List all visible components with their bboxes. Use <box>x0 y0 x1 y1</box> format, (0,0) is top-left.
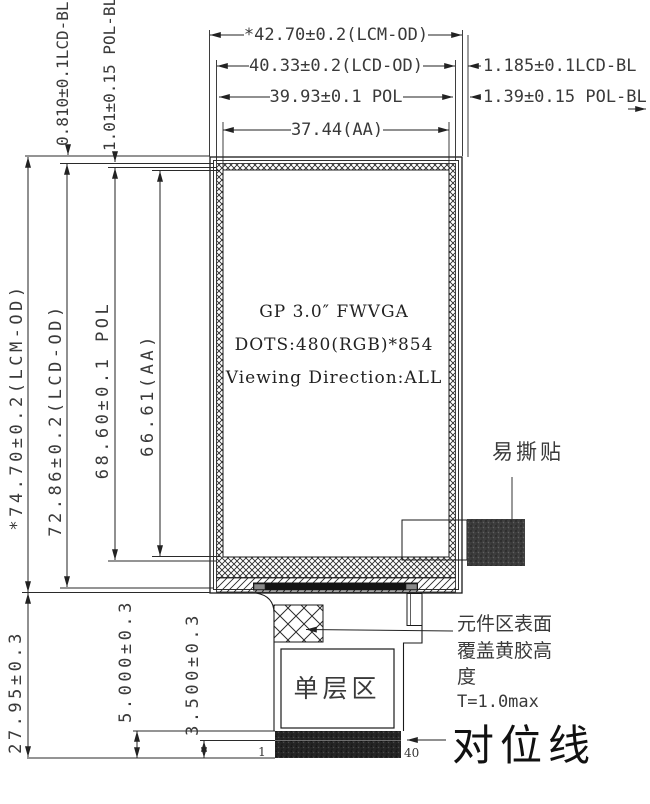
dim-lcd-bl-top: 0.810±0.1LCD-BL <box>53 2 72 147</box>
dim-pol-height: 68.60±0.1 POL <box>93 301 113 480</box>
single-layer-label: 单层区 <box>293 674 380 703</box>
display-resolution: DOTS:480(RGB)*854 <box>235 335 434 355</box>
fpc-left-edge <box>256 593 274 731</box>
dim-lcm-height: *74.70±0.2(LCM-OD) <box>7 283 27 530</box>
driver-ic-pad-right <box>406 584 417 590</box>
fpc-connector-tab <box>407 594 422 626</box>
sticker-dark-part <box>467 519 525 566</box>
component-note-line1: 元件区表面 <box>457 613 552 635</box>
dim-lcd-bl-right: 1.185±0.1LCD-BL <box>483 56 637 76</box>
dim-pol-bl-right: 1.39±0.15 POL-BL <box>483 87 647 107</box>
dim-3-5mm: 3.500±0.3 <box>183 612 203 736</box>
active-area <box>223 170 449 557</box>
display-viewing-direction: Viewing Direction:ALL <box>225 368 443 388</box>
lcd-module-drawing: *42.70±0.2(LCM-OD) 40.33±0.2(LCD-OD) 39.… <box>0 0 650 804</box>
dim-aa-height: 66.61(AA) <box>138 333 158 457</box>
top-dimension-texts: *42.70±0.2(LCM-OD) 40.33±0.2(LCD-OD) 39.… <box>244 25 647 140</box>
dim-lcm-width: *42.70±0.2(LCM-OD) <box>244 25 428 45</box>
dim-pol-bl-top: 1.01±0.15 POL-BL <box>100 0 119 151</box>
dim-pol-width: 39.93±0.1 POL <box>269 87 402 107</box>
alignment-line-label: 对位线 <box>452 721 596 770</box>
component-note-line2: 覆盖黄胶高 <box>457 640 552 662</box>
dim-aa-width: 37.44(AA) <box>291 120 383 140</box>
dim-fpc-height: 27.95±0.3 <box>6 630 26 754</box>
driver-ic-bar <box>253 583 418 591</box>
dim-5mm: 5.000±0.3 <box>116 599 136 723</box>
pin-40-label: 40 <box>404 746 419 760</box>
display-model: GP 3.0″ FWVGA <box>259 302 409 322</box>
easy-tear-label: 易撕贴 <box>492 440 564 464</box>
stiffener-bar <box>275 731 401 758</box>
dim-lcd-height: 72.86±0.2(LCD-OD) <box>46 303 66 537</box>
component-area-block <box>274 605 323 642</box>
drawing-canvas: *42.70±0.2(LCM-OD) 40.33±0.2(LCD-OD) 39.… <box>0 0 650 804</box>
left-dimension-texts: 0.810±0.1LCD-BL 1.01±0.15 POL-BL *74.70±… <box>6 0 203 754</box>
component-note-line3: 度 <box>457 666 476 688</box>
pin-1-label: 1 <box>258 745 266 759</box>
component-note-height: T=1.0max <box>457 692 539 712</box>
driver-ic-pad-left <box>254 584 265 590</box>
dim-lcd-width: 40.33±0.2(LCD-OD) <box>249 56 423 76</box>
component-note-leader <box>306 630 453 632</box>
